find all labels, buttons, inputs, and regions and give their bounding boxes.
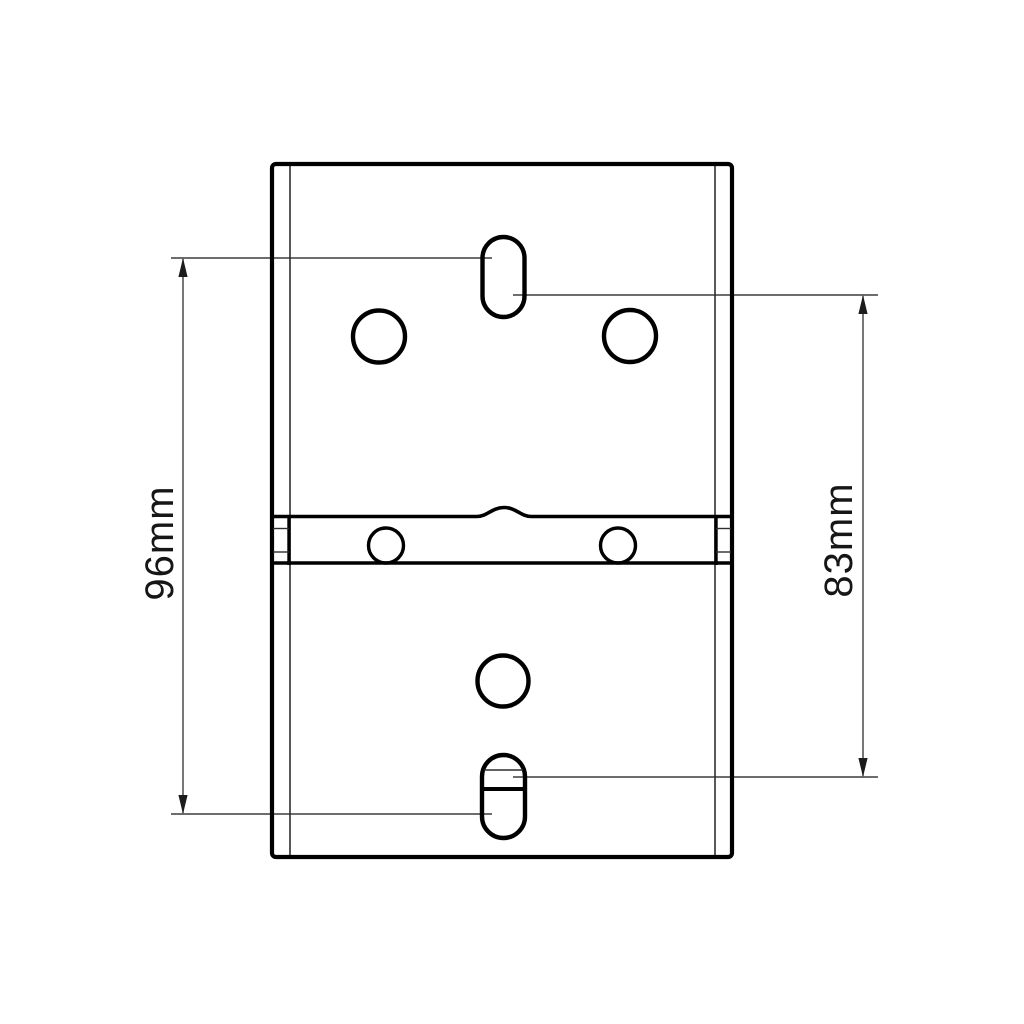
technical-drawing-canvas: 96mm 83mm [0, 0, 1024, 1024]
dim-96-label: 96mm [138, 485, 182, 600]
lower-center-hole [478, 656, 529, 707]
dim-96-arrow-up-icon [178, 258, 187, 277]
bottom-slot-hole [482, 755, 525, 838]
dim-83-label: 83mm [817, 482, 861, 597]
top-slot-hole [483, 237, 525, 317]
dim-96-arrow-down-icon [178, 795, 187, 814]
dim-83-arrow-up-icon [858, 295, 867, 314]
rail-left-hole [369, 528, 404, 563]
drawing-page: 96mm 83mm [0, 0, 1024, 1024]
upper-right-hole [604, 310, 656, 362]
center-rail-top-edge-with-center-bump [272, 508, 732, 517]
rail-right-hole [601, 528, 636, 563]
upper-left-hole [353, 311, 405, 363]
dim-83-arrow-down-icon [858, 758, 867, 777]
holes-group [353, 237, 656, 838]
dimension-83-group: 83mm [513, 295, 878, 777]
dimension-96-group: 96mm [138, 258, 492, 814]
